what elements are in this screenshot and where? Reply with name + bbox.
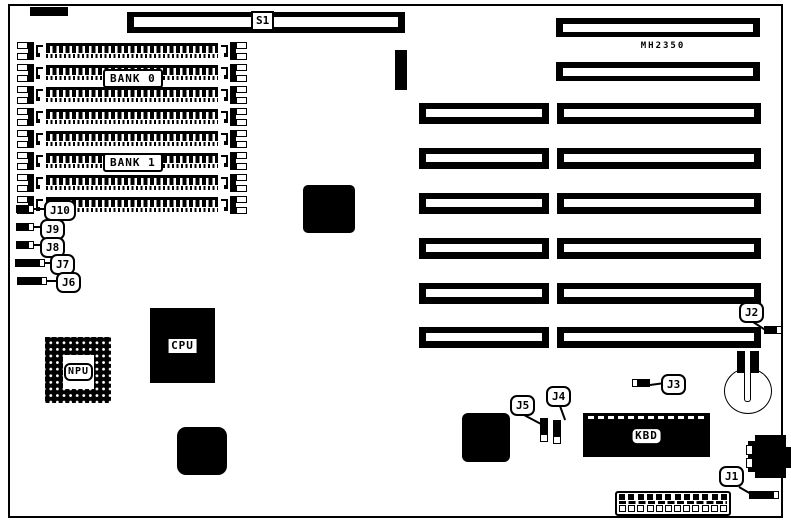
header-pin-row-top xyxy=(619,494,727,500)
expansion-slot-segment xyxy=(557,148,761,169)
keyboard-din-connector xyxy=(755,435,786,478)
simm-endcap xyxy=(236,64,247,82)
simm-latch-icon xyxy=(218,86,230,104)
expansion-slot-segment xyxy=(419,148,549,169)
simm-latch-icon xyxy=(34,130,46,148)
simm-socket xyxy=(17,108,247,126)
jumper-pins-j8 xyxy=(16,241,34,249)
support-chip xyxy=(177,427,227,475)
header-dashes xyxy=(619,501,727,504)
din-connector-tab xyxy=(786,447,791,468)
simm-endcap xyxy=(236,86,247,104)
jumper-pins-j1 xyxy=(749,491,779,499)
bank1-label: BANK 1 xyxy=(103,153,163,172)
jumper-pins-j5 xyxy=(540,418,548,442)
simm-contact-comb xyxy=(46,86,218,104)
jumper-label-j4: J4 xyxy=(546,386,571,407)
expansion-slot-segment xyxy=(419,238,549,259)
simm-endcap xyxy=(236,130,247,148)
expansion-slot-segment xyxy=(419,327,549,348)
expansion-slot-segment xyxy=(419,283,549,304)
din-pad xyxy=(746,445,753,455)
expansion-slot-segment xyxy=(557,238,761,259)
simm-endcap xyxy=(17,86,28,104)
expansion-slot-segment xyxy=(557,103,761,124)
io-chip xyxy=(462,413,510,462)
simm-socket xyxy=(17,174,247,192)
simm-socket xyxy=(17,86,247,104)
expansion-slot-segment xyxy=(419,193,549,214)
expansion-slot-segment xyxy=(557,283,761,304)
jumper-label-j1: J1 xyxy=(719,466,744,487)
battery-stem xyxy=(744,351,751,402)
npu-socket-center: NPU xyxy=(63,355,94,389)
simm-latch-icon xyxy=(218,130,230,148)
simm-latch-icon xyxy=(34,64,46,82)
simm-latch-icon xyxy=(218,108,230,126)
oscillator-component xyxy=(395,50,407,90)
simm-endcap xyxy=(236,174,247,192)
simm-latch-icon xyxy=(34,42,46,60)
simm-latch-icon xyxy=(218,174,230,192)
simm-latch-icon xyxy=(34,86,46,104)
simm-contact-comb xyxy=(46,42,218,60)
cpu-chip: CPU xyxy=(150,308,215,383)
kbd-socket-notch xyxy=(588,416,705,419)
board-model-label: MH2350 xyxy=(628,41,698,51)
jumper-pins-j7 xyxy=(15,259,45,267)
simm-latch-icon xyxy=(34,174,46,192)
jumper-pins-j3 xyxy=(632,379,650,387)
simm-latch-icon xyxy=(34,108,46,126)
header-pin-row-bottom xyxy=(619,505,727,512)
simm-contact-comb xyxy=(46,130,218,148)
simm-endcap xyxy=(17,130,28,148)
simm-endcap xyxy=(17,42,28,60)
simm-endcap xyxy=(17,174,28,192)
jumper-label-j5: J5 xyxy=(510,395,535,416)
simm-latch-icon xyxy=(218,64,230,82)
keyboard-controller-chip: KBD xyxy=(583,413,710,457)
power-connector xyxy=(30,7,68,16)
simm-latch-icon xyxy=(218,196,230,214)
expansion-slot-segment xyxy=(556,18,760,37)
jumper-label-j3: J3 xyxy=(661,374,686,395)
simm-endcap xyxy=(17,108,28,126)
simm-latch-icon xyxy=(218,152,230,170)
dip-switch-s1-label: S1 xyxy=(251,11,274,31)
chipset-chip xyxy=(303,185,355,233)
simm-contact-comb xyxy=(46,174,218,192)
battery-terminal-right xyxy=(751,351,759,373)
expansion-slot-segment xyxy=(419,103,549,124)
simm-endcap xyxy=(236,152,247,170)
npu-socket: NPU xyxy=(45,337,111,403)
simm-latch-icon xyxy=(218,42,230,60)
simm-endcap xyxy=(17,64,28,82)
simm-endcap xyxy=(236,42,247,60)
jumper-pins-j6 xyxy=(17,277,47,285)
simm-endcap xyxy=(236,196,247,214)
simm-socket xyxy=(17,42,247,60)
simm-endcap xyxy=(236,108,247,126)
simm-endcap xyxy=(17,152,28,170)
jumper-label-j10: J10 xyxy=(44,200,76,221)
expansion-slot-segment xyxy=(557,193,761,214)
bottom-pin-header xyxy=(615,491,731,516)
expansion-slot-segment xyxy=(557,327,761,348)
kbd-label: KBD xyxy=(630,427,663,445)
cpu-label: CPU xyxy=(168,339,197,353)
motherboard-diagram: S1 xyxy=(0,0,791,527)
bank0-label: BANK 0 xyxy=(103,69,163,88)
simm-contact-comb xyxy=(46,108,218,126)
expansion-slot-segment xyxy=(556,62,760,81)
npu-label: NPU xyxy=(64,363,93,381)
jumper-label-j2: J2 xyxy=(739,302,764,323)
din-pad xyxy=(746,458,753,468)
jumper-pins-j2 xyxy=(764,326,782,334)
jumper-label-j6: J6 xyxy=(56,272,81,293)
jumper-pins-j9 xyxy=(16,223,34,231)
jumper-pins-j10 xyxy=(16,205,34,213)
simm-socket xyxy=(17,130,247,148)
simm-latch-icon xyxy=(34,152,46,170)
jumper-pins-j4 xyxy=(553,420,561,444)
